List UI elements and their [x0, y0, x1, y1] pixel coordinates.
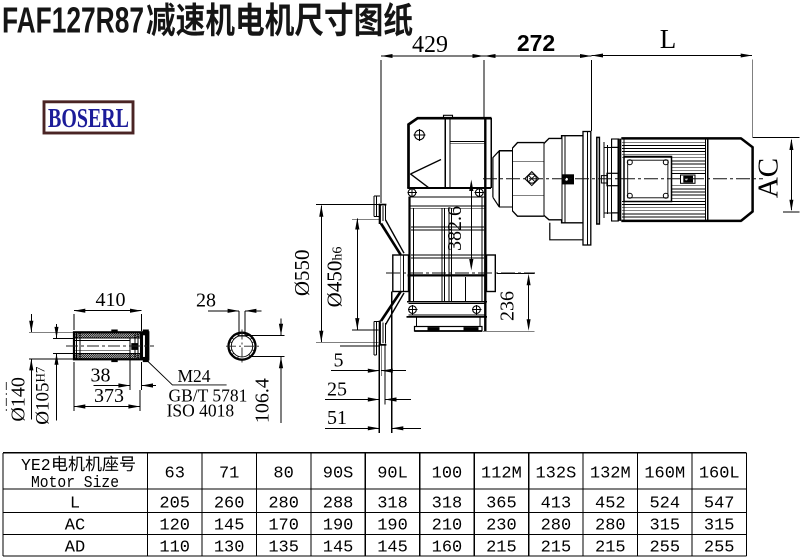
svg-text:255: 255 [704, 539, 735, 557]
svg-text:L: L [70, 494, 80, 513]
svg-text:145: 145 [323, 539, 354, 557]
svg-text:524: 524 [649, 494, 680, 513]
svg-text:63: 63 [165, 465, 185, 484]
svg-text:280: 280 [268, 494, 299, 513]
svg-text:110: 110 [159, 539, 190, 557]
svg-text:38: 38 [91, 364, 111, 386]
svg-text:51: 51 [327, 407, 347, 429]
svg-text:190: 190 [377, 517, 408, 536]
svg-text:112M: 112M [481, 465, 522, 484]
svg-text:205: 205 [159, 494, 190, 513]
svg-text:410: 410 [96, 289, 126, 311]
svg-text:145: 145 [214, 517, 245, 536]
svg-text:210: 210 [432, 517, 463, 536]
svg-text:AD: AD [65, 539, 85, 557]
svg-text:429: 429 [412, 32, 448, 58]
svg-text:130: 130 [214, 539, 245, 557]
svg-text:AC: AC [65, 517, 85, 536]
svg-text:120: 120 [159, 517, 190, 536]
svg-text:160L: 160L [699, 465, 740, 484]
svg-text:ISO 4018: ISO 4018 [167, 401, 235, 421]
svg-text:452: 452 [595, 494, 626, 513]
svg-text:382.6: 382.6 [444, 206, 466, 251]
svg-text:318: 318 [432, 494, 463, 513]
svg-text:272: 272 [517, 30, 555, 56]
svg-text:160: 160 [432, 539, 463, 557]
svg-text:413: 413 [541, 494, 572, 513]
svg-text:135: 135 [268, 539, 299, 557]
svg-text:25: 25 [327, 378, 347, 400]
svg-text:132S: 132S [535, 465, 576, 484]
svg-text:132M: 132M [590, 465, 631, 484]
svg-text:315: 315 [704, 517, 735, 536]
svg-text:365: 365 [486, 494, 517, 513]
svg-text:315: 315 [649, 517, 680, 536]
svg-text:236: 236 [497, 291, 519, 321]
svg-text:170: 170 [268, 517, 299, 536]
svg-text:255: 255 [649, 539, 680, 557]
svg-text:160M: 160M [644, 465, 685, 484]
svg-text:90S: 90S [323, 465, 354, 484]
svg-text:28: 28 [196, 289, 216, 311]
svg-text:318: 318 [377, 494, 408, 513]
svg-text:90L: 90L [377, 465, 408, 484]
svg-text:BOSERL: BOSERL [48, 103, 129, 133]
svg-text:373: 373 [94, 385, 124, 407]
svg-text:190: 190 [323, 517, 354, 536]
svg-text:L: L [660, 24, 677, 54]
svg-text:280: 280 [595, 517, 626, 536]
svg-text:100: 100 [432, 465, 463, 484]
svg-text:215: 215 [541, 539, 572, 557]
svg-text:80: 80 [273, 465, 293, 484]
svg-text:106.4: 106.4 [251, 378, 273, 423]
svg-text:AC: AC [753, 158, 785, 198]
svg-text:260: 260 [214, 494, 245, 513]
svg-text:Motor Size: Motor Size [31, 473, 119, 492]
svg-text:5: 5 [334, 350, 344, 372]
svg-text:Ø140: Ø140 [8, 377, 30, 421]
svg-text:71: 71 [219, 465, 239, 484]
svg-text:FAF127R87: FAF127R87 [2, 0, 144, 41]
svg-text:145: 145 [377, 539, 408, 557]
svg-text:230: 230 [486, 517, 517, 536]
svg-text:M24: M24 [177, 366, 210, 386]
svg-text:215: 215 [486, 539, 517, 557]
svg-text:280: 280 [541, 517, 572, 536]
svg-text:547: 547 [704, 494, 735, 513]
svg-text:288: 288 [323, 494, 354, 513]
svg-text:215: 215 [595, 539, 626, 557]
svg-text:Ø550: Ø550 [290, 249, 314, 296]
